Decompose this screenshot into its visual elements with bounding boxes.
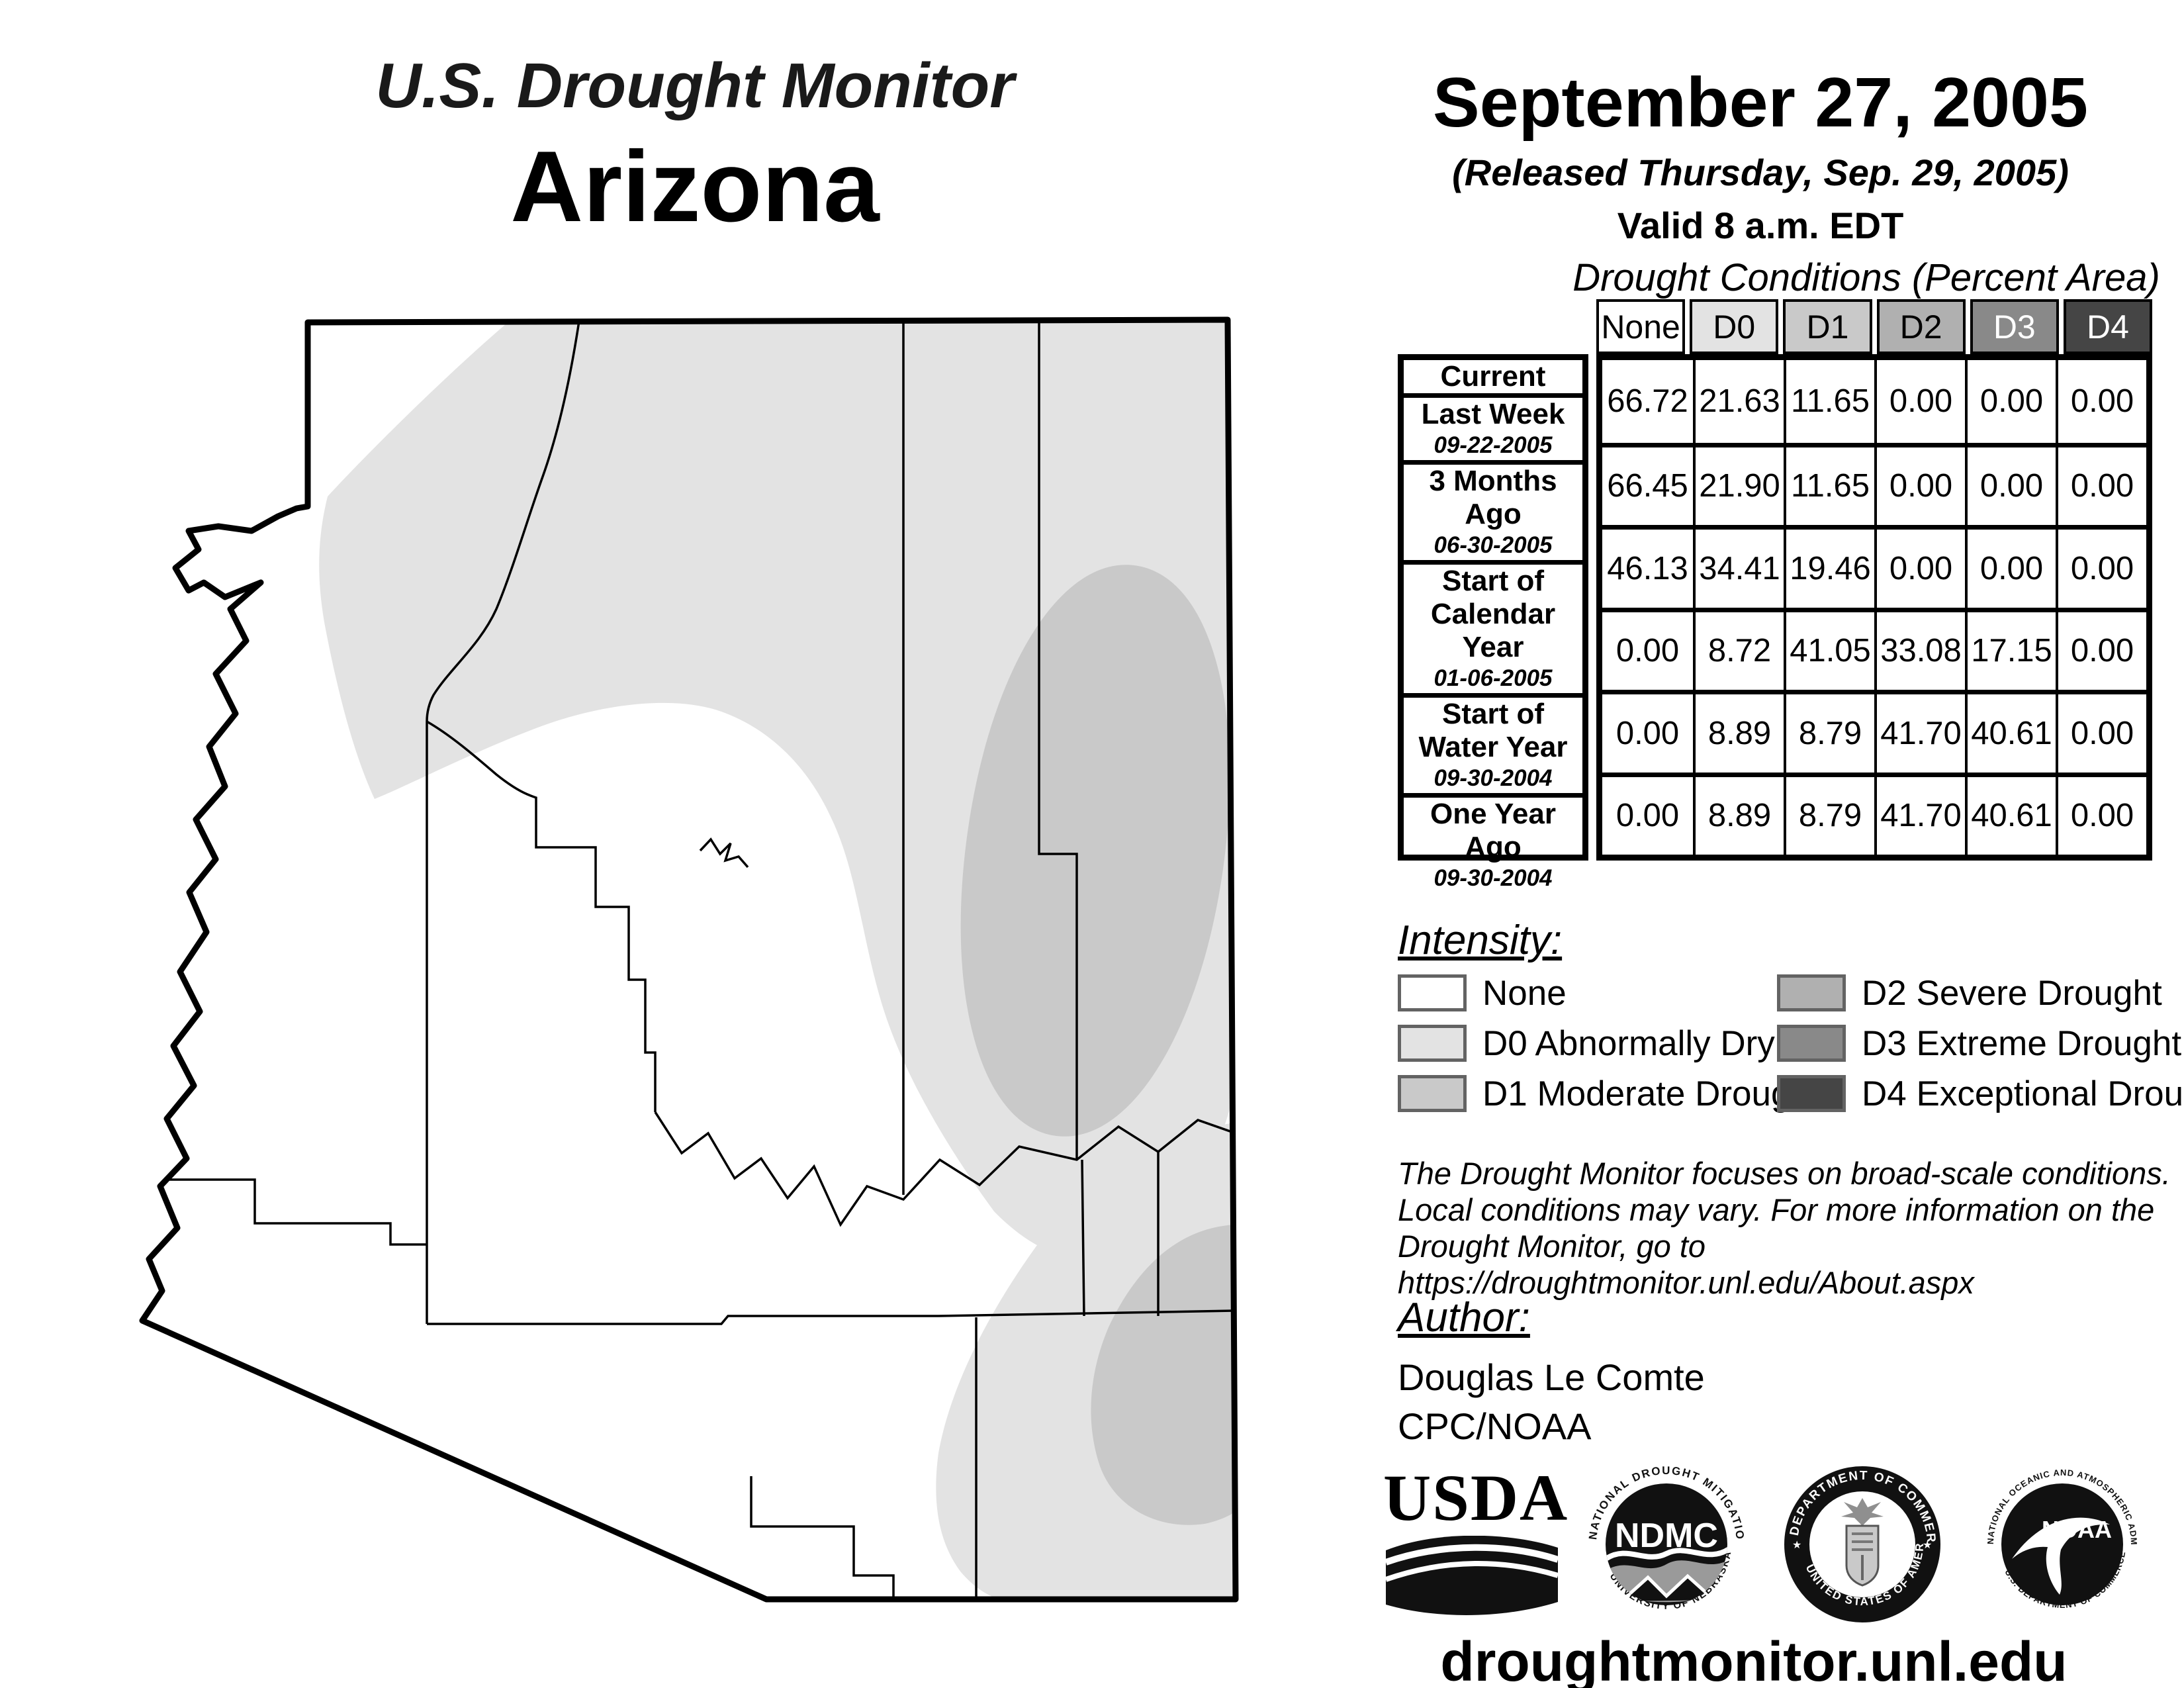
column-header-d1: D1	[1783, 299, 1872, 354]
release-date: (Released Thursday, Sep. 29, 2005)	[1337, 151, 2184, 194]
column-header-d2: D2	[1877, 299, 1966, 354]
column-header-d0: D0	[1690, 299, 1778, 354]
column-header-d3: D3	[1970, 299, 2059, 354]
legend-item-d1: D1 Moderate Drought	[1398, 1068, 1820, 1119]
table-cell: 0.00	[2056, 690, 2146, 773]
table-caption: Drought Conditions (Percent Area)	[1549, 256, 2184, 300]
row-label-one-year-ago: One Year Ago 09-30-2004	[1404, 793, 1582, 893]
ndmc-logo: NATIONAL DROUGHT MITIGATION CENTER UNIVE…	[1582, 1460, 1751, 1632]
legend-item-d3: D3 Extreme Drought	[1777, 1018, 2184, 1068]
legend-swatch-d4	[1777, 1075, 1846, 1112]
legend-item-none: None	[1398, 968, 1820, 1018]
row-label-last-week: Last Week 09-22-2005	[1404, 393, 1582, 460]
table-cell: 0.00	[1874, 525, 1965, 608]
drought-monitor-page: U.S. Drought Monitor Arizona September 2…	[0, 0, 2184, 1688]
row-label-3-months-ago: 3 Months Ago 06-30-2005	[1404, 460, 1582, 560]
disclaimer-text: The Drought Monitor focuses on broad-sca…	[1398, 1155, 2184, 1301]
table-cell: 0.00	[2056, 360, 2146, 443]
table-cell: 0.00	[2056, 773, 2146, 855]
table-cell: 66.72	[1602, 360, 1693, 443]
author-heading: Author:	[1398, 1294, 1530, 1341]
table-cell: 0.00	[1965, 443, 2056, 526]
author-name: Douglas Le Comte	[1398, 1356, 1705, 1399]
table-cell: 40.61	[1965, 773, 2056, 855]
column-header-d4: D4	[2064, 299, 2152, 354]
usda-swoosh-icon	[1383, 1536, 1561, 1622]
table-values-grid: 66.72 21.63 11.65 0.00 0.00 0.00 66.45 2…	[1596, 354, 2152, 861]
legend-item-d0: D0 Abnormally Dry	[1398, 1018, 1820, 1068]
table-cell: 0.00	[2056, 525, 2146, 608]
footer-url: droughtmonitor.unl.edu	[1310, 1630, 2184, 1688]
row-label-start-calendar-year: Start of Calendar Year 01-06-2005	[1404, 560, 1582, 693]
table-cell: 40.61	[1965, 690, 2056, 773]
author-organization: CPC/NOAA	[1398, 1405, 1592, 1448]
row-label-start-water-year: Start of Water Year 09-30-2004	[1404, 693, 1582, 793]
seal-star-icon: ★	[1792, 1540, 1801, 1551]
table-cell: 0.00	[1874, 360, 1965, 443]
page-title: U.S. Drought Monitor	[126, 50, 1264, 122]
table-cell: 17.15	[1965, 608, 2056, 690]
noaa-logo: NATIONAL OCEANIC AND ATMOSPHERIC ADMINIS…	[1978, 1460, 2147, 1632]
table-cell: 8.79	[1784, 690, 1874, 773]
table-cell: 19.46	[1784, 525, 1874, 608]
row-label-current: Current	[1404, 360, 1582, 393]
arizona-drought-map	[126, 298, 1264, 1655]
table-cell: 8.72	[1693, 608, 1784, 690]
table-cell: 0.00	[1965, 525, 2056, 608]
legend-swatch-d3	[1777, 1025, 1846, 1062]
arizona-map-svg	[126, 298, 1264, 1655]
table-cell: 34.41	[1693, 525, 1784, 608]
map-date: September 27, 2005	[1337, 63, 2184, 143]
legend-swatch-d0	[1398, 1025, 1467, 1062]
usda-wordmark: USDA	[1383, 1460, 1562, 1536]
table-cell: 8.89	[1693, 690, 1784, 773]
commerce-seal: DEPARTMENT OF COMMERCE UNITED STATES OF …	[1778, 1460, 1947, 1632]
agency-logos: USDA NATIONAL DROUGHT MITIGATION CENTER	[1383, 1460, 2164, 1628]
noaa-wordmark: NOAA	[2042, 1516, 2112, 1543]
table-header-row: None D0 D1 D2 D3 D4	[1596, 299, 2152, 354]
table-cell: 21.90	[1693, 443, 1784, 526]
table-cell: 11.65	[1784, 360, 1874, 443]
legend-item-d4: D4 Exceptional Drought	[1777, 1068, 2184, 1119]
table-cell: 33.08	[1874, 608, 1965, 690]
table-cell: 0.00	[1602, 608, 1693, 690]
table-cell: 41.05	[1784, 608, 1874, 690]
legend-swatch-none	[1398, 974, 1467, 1011]
table-cell: 8.79	[1784, 773, 1874, 855]
legend-heading: Intensity:	[1398, 917, 1562, 964]
table-cell: 0.00	[2056, 608, 2146, 690]
table-cell: 8.89	[1693, 773, 1784, 855]
table-cell: 41.70	[1874, 773, 1965, 855]
table-cell: 46.13	[1602, 525, 1693, 608]
seal-star-icon: ★	[1923, 1540, 1932, 1551]
column-header-none: None	[1596, 299, 1685, 354]
table-cell: 11.65	[1784, 443, 1874, 526]
valid-time: Valid 8 a.m. EDT	[1337, 204, 2184, 247]
table-cell: 41.70	[1874, 690, 1965, 773]
table-row-labels: Current Last Week 09-22-2005 3 Months Ag…	[1398, 354, 1588, 861]
drought-conditions-table: None D0 D1 D2 D3 D4 Current Last Week 09…	[1398, 299, 2152, 861]
table-cell: 0.00	[1874, 443, 1965, 526]
table-cell: 0.00	[1602, 690, 1693, 773]
legend-item-d2: D2 Severe Drought	[1777, 968, 2184, 1018]
legend-swatch-d1	[1398, 1075, 1467, 1112]
table-cell: 21.63	[1693, 360, 1784, 443]
table-cell: 66.45	[1602, 443, 1693, 526]
table-cell: 0.00	[1965, 360, 2056, 443]
table-cell: 0.00	[2056, 443, 2146, 526]
state-title: Arizona	[126, 129, 1264, 245]
usda-logo: USDA	[1383, 1460, 1562, 1625]
legend-swatch-d2	[1777, 974, 1846, 1011]
ndmc-wordmark: NDMC	[1615, 1517, 1718, 1555]
table-cell: 0.00	[1602, 773, 1693, 855]
